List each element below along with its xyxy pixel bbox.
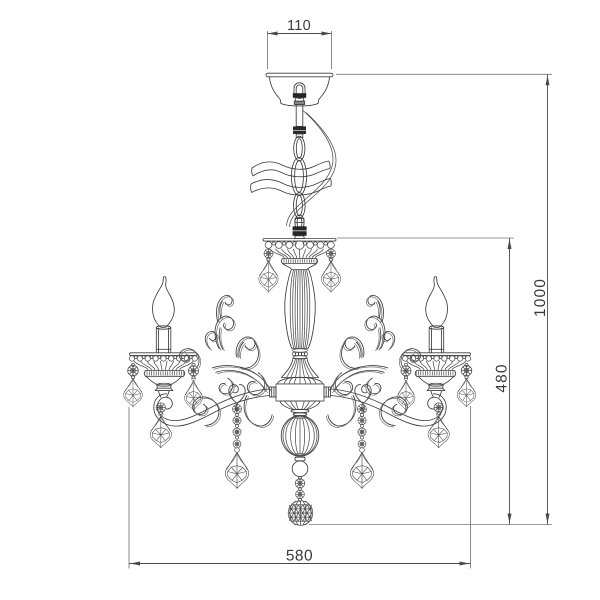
svg-text:110: 110	[287, 18, 311, 34]
svg-text:580: 580	[286, 548, 313, 565]
svg-text:1000: 1000	[532, 278, 549, 317]
svg-text:480: 480	[494, 363, 511, 392]
